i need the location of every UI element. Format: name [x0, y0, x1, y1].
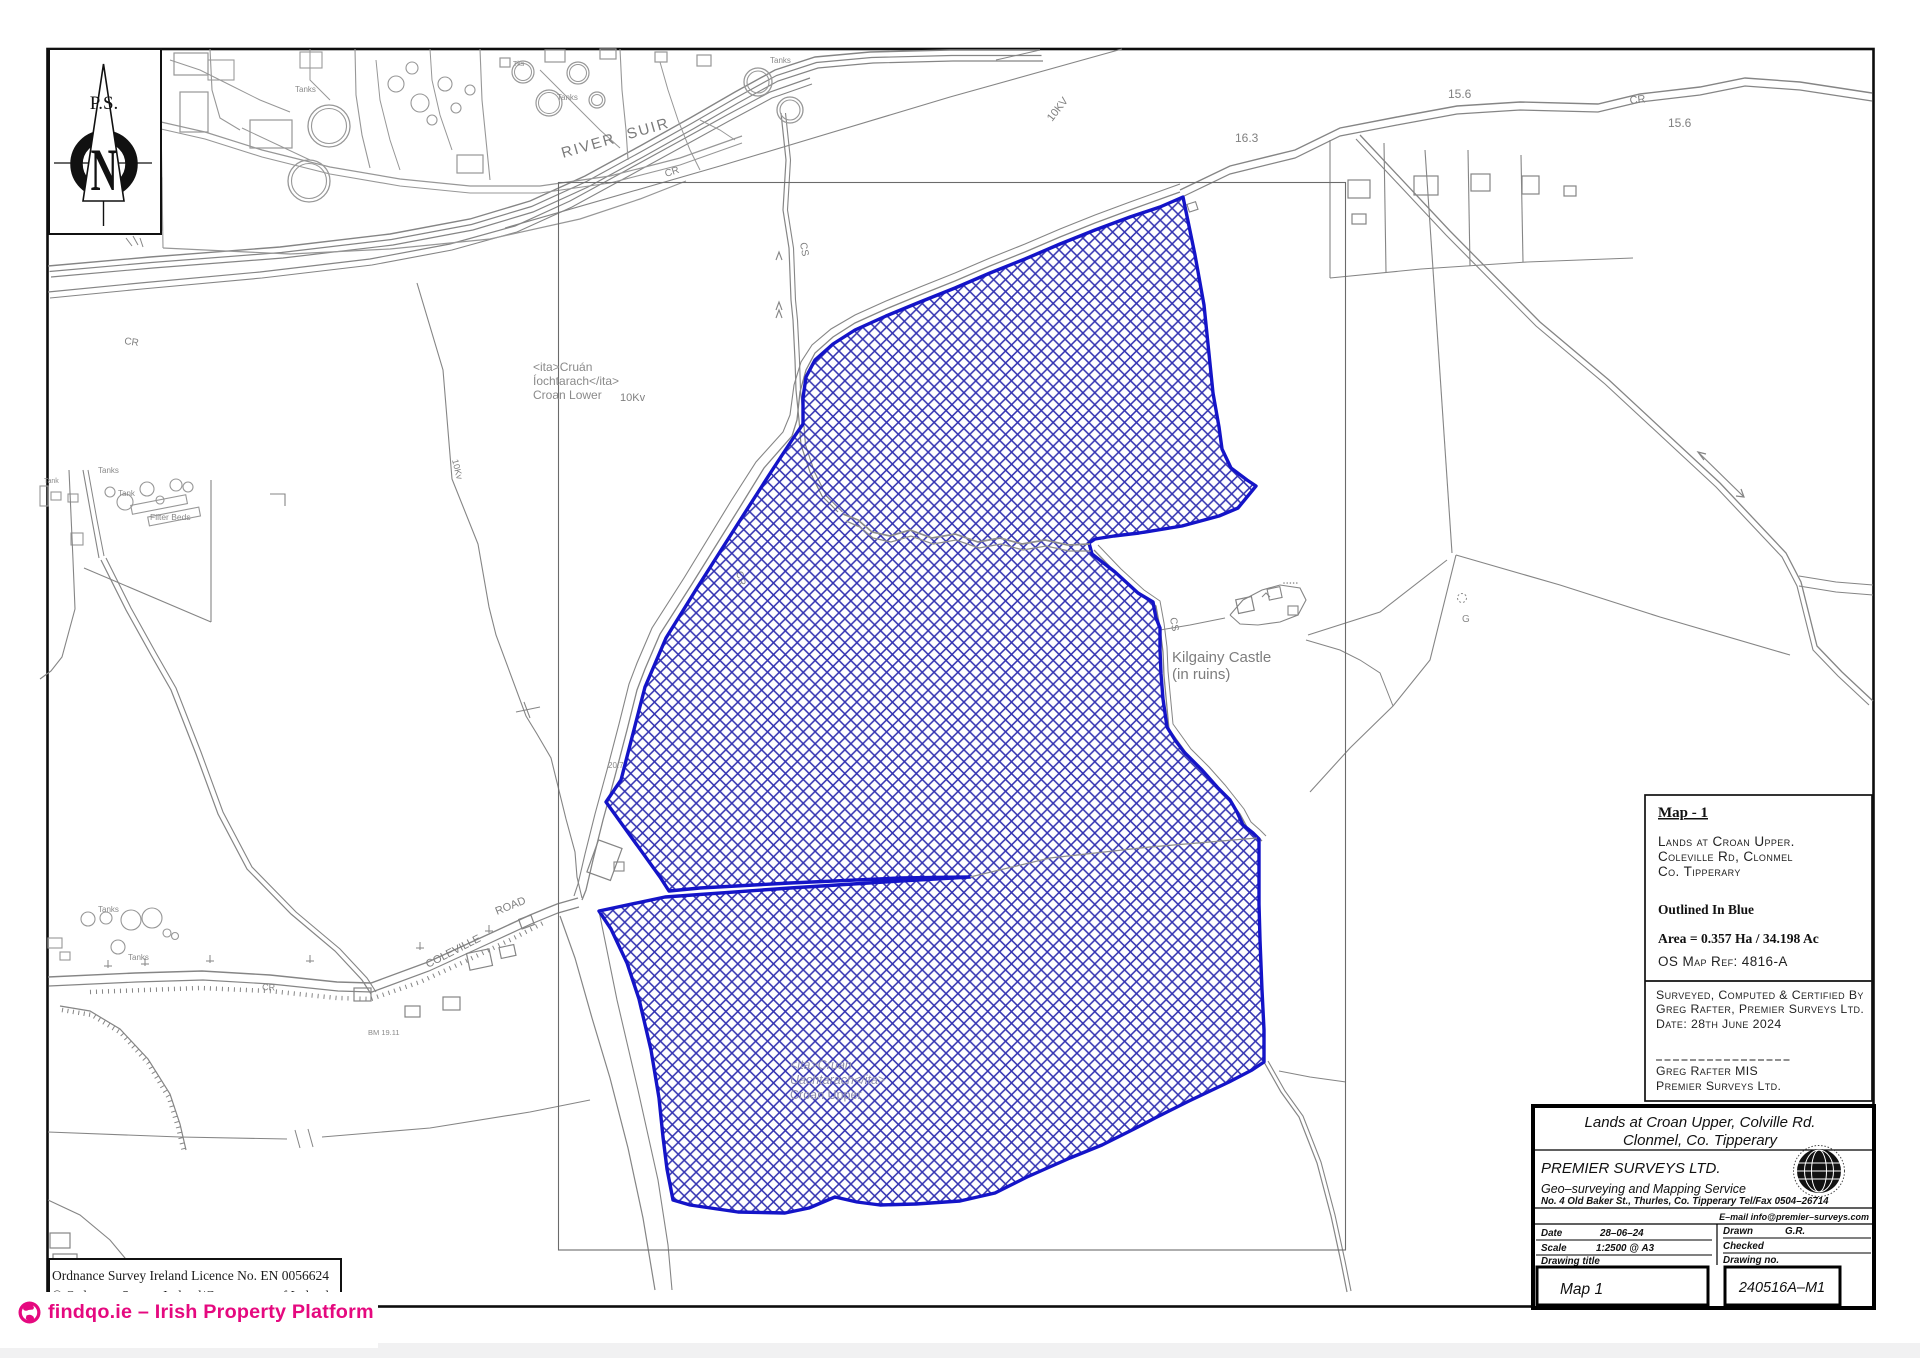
- svg-text:Uachtarach</ita>: Uachtarach</ita>: [790, 1073, 885, 1087]
- svg-text:Tanks: Tanks: [295, 85, 316, 94]
- svg-text:Tanks: Tanks: [98, 905, 119, 914]
- svg-text:Coleville Rd, Clonmel: Coleville Rd, Clonmel: [1658, 849, 1793, 864]
- svg-text:Date: 28th June 2024: Date: 28th June 2024: [1656, 1017, 1782, 1031]
- svg-text:240516A–M1: 240516A–M1: [1738, 1280, 1825, 1296]
- svg-text:G: G: [1462, 614, 1470, 625]
- svg-text:<ita>Cruán: <ita>Cruán: [790, 1058, 852, 1072]
- svg-text:Map 1: Map 1: [1560, 1281, 1603, 1298]
- svg-text:Drawn: Drawn: [1723, 1226, 1753, 1237]
- svg-text:E–mail info@premier–surveys.co: E–mail info@premier–surveys.com: [1719, 1212, 1869, 1222]
- svg-text:Tank: Tank: [44, 478, 59, 485]
- svg-text:28–06–24: 28–06–24: [1599, 1228, 1644, 1239]
- svg-text:Co. Tipperary: Co. Tipperary: [1658, 864, 1741, 879]
- svg-text:Outlined In Blue: Outlined In Blue: [1658, 902, 1754, 917]
- svg-text:Drawing no.: Drawing no.: [1723, 1255, 1779, 1266]
- svg-text:15.6: 15.6: [1448, 87, 1472, 101]
- svg-text:1:2500 @ A3: 1:2500 @ A3: [1596, 1243, 1655, 1254]
- svg-text:10Kv: 10Kv: [620, 392, 646, 404]
- svg-text:Drawing title: Drawing title: [1541, 1256, 1600, 1267]
- svg-text:Croan Upper: Croan Upper: [790, 1088, 862, 1102]
- svg-text:Ordnance Survey Ireland Licenc: Ordnance Survey Ireland Licence No. EN 0…: [52, 1268, 329, 1283]
- svg-text:Tanks: Tanks: [770, 56, 791, 65]
- svg-text:15.6: 15.6: [1668, 116, 1692, 130]
- svg-text:16.3: 16.3: [1235, 131, 1259, 145]
- svg-text:Geo–surveying and Mapping Serv: Geo–surveying and Mapping Service: [1541, 1182, 1746, 1196]
- svg-text:PREMIER SURVEYS LTD.: PREMIER SURVEYS LTD.: [1541, 1160, 1721, 1177]
- svg-text:Clonmel, Co. Tipperary: Clonmel, Co. Tipperary: [1623, 1132, 1779, 1149]
- svg-text:Tanks: Tanks: [557, 93, 578, 102]
- svg-text:OS Map Ref: 4816-A: OS Map Ref: 4816-A: [1658, 954, 1788, 969]
- svg-text:N: N: [91, 137, 118, 203]
- svg-text:Lands at Croan Upper.: Lands at Croan Upper.: [1658, 834, 1795, 849]
- svg-text:Tks: Tks: [513, 61, 525, 68]
- svg-text:Premier Surveys Ltd.: Premier Surveys Ltd.: [1656, 1079, 1781, 1093]
- svg-text:Tanks: Tanks: [98, 466, 119, 475]
- svg-text:Íochtarach</ita>: Íochtarach</ita>: [533, 373, 619, 388]
- svg-text:P.S.: P.S.: [90, 93, 119, 114]
- svg-text:G.R.: G.R.: [1785, 1226, 1805, 1237]
- svg-text:Greg Rafter, Premier Surveys L: Greg Rafter, Premier Surveys Ltd.: [1656, 1002, 1864, 1016]
- svg-text:Kilgainy Castle: Kilgainy Castle: [1172, 649, 1271, 666]
- svg-text:Croan Lower: Croan Lower: [533, 388, 602, 402]
- svg-text:CR: CR: [124, 336, 140, 349]
- svg-text:findqo.ie – Irish Property Pla: findqo.ie – Irish Property Platform: [48, 1301, 374, 1323]
- svg-text:Area = 0.357 Ha / 34.198 Ac: Area = 0.357 Ha / 34.198 Ac: [1658, 931, 1819, 946]
- svg-text:Tank: Tank: [118, 489, 136, 498]
- svg-text:Greg Rafter MIS: Greg Rafter MIS: [1656, 1064, 1758, 1078]
- svg-text:Surveyed, Computed & Certified: Surveyed, Computed & Certified By: [1656, 988, 1864, 1002]
- svg-text:Date: Date: [1541, 1228, 1563, 1239]
- svg-text:Lands at Croan Upper, Colville: Lands at Croan Upper, Colville Rd.: [1585, 1114, 1816, 1131]
- svg-text:Checked: Checked: [1723, 1241, 1765, 1252]
- svg-text:CR: CR: [1629, 93, 1646, 107]
- svg-text:Filter Beds: Filter Beds: [150, 512, 191, 522]
- svg-text:CR: CR: [262, 982, 276, 992]
- svg-text:(in ruins): (in ruins): [1172, 666, 1230, 683]
- svg-text:BM 19.11: BM 19.11: [368, 1028, 400, 1037]
- svg-text:Map - 1: Map - 1: [1658, 805, 1708, 821]
- svg-text:<ita>Cruán: <ita>Cruán: [533, 360, 592, 374]
- svg-text:No. 4 Old Baker St., Thurles,: No. 4 Old Baker St., Thurles, Co. Tipper…: [1541, 1196, 1829, 1207]
- svg-text:20.7: 20.7: [608, 761, 624, 770]
- svg-text:Scale: Scale: [1541, 1243, 1567, 1254]
- svg-text:Tanks: Tanks: [128, 953, 149, 962]
